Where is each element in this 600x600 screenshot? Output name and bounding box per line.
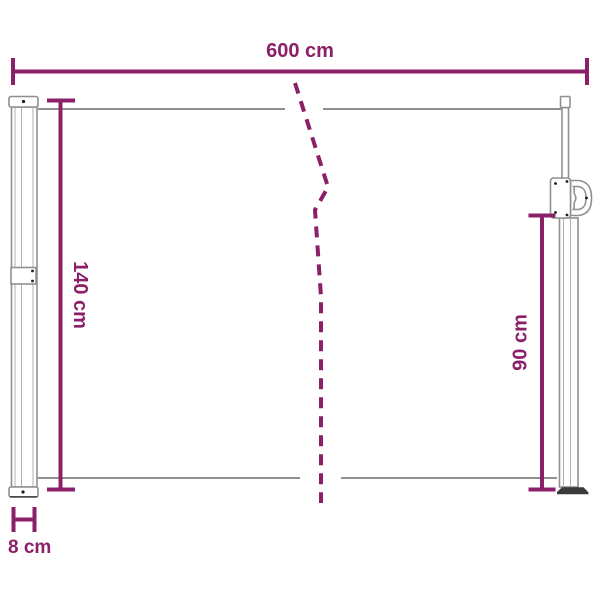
height-left-dimension-label: 140 cm (69, 261, 91, 329)
height-right-dimension-label: 90 cm (510, 314, 532, 371)
screw-dot (31, 270, 34, 273)
pull-handle-plate (551, 178, 571, 218)
diagram-svg: 600 cm 140 cm (0, 0, 600, 600)
screw-dot (554, 211, 557, 214)
screw-dot (31, 280, 34, 283)
pole-top-cap (561, 97, 571, 108)
pole-lower-section (560, 218, 579, 487)
height-left-dimension: 140 cm (47, 101, 91, 490)
pole-ground-foot (557, 487, 589, 494)
pole-upper-section (562, 108, 569, 179)
left-cassette-post (9, 97, 38, 498)
screw-dot (554, 182, 557, 185)
pull-handle-grip-cutout (574, 187, 587, 210)
depth-dimension: 8 cm (8, 507, 51, 558)
height-right-dimension: 90 cm (510, 216, 556, 490)
right-pole (551, 97, 592, 495)
depth-dimension-label: 8 cm (8, 537, 51, 558)
screw-dot (566, 214, 569, 217)
width-dimension: 600 cm (13, 40, 587, 85)
fabric-break-line (295, 83, 328, 503)
screw-dot (21, 490, 24, 493)
screw-dot (22, 100, 25, 103)
width-dimension-label: 600 cm (266, 40, 334, 62)
screw-dot (585, 197, 588, 200)
screw-dot (566, 180, 569, 183)
dimension-diagram: 600 cm 140 cm (0, 0, 600, 600)
